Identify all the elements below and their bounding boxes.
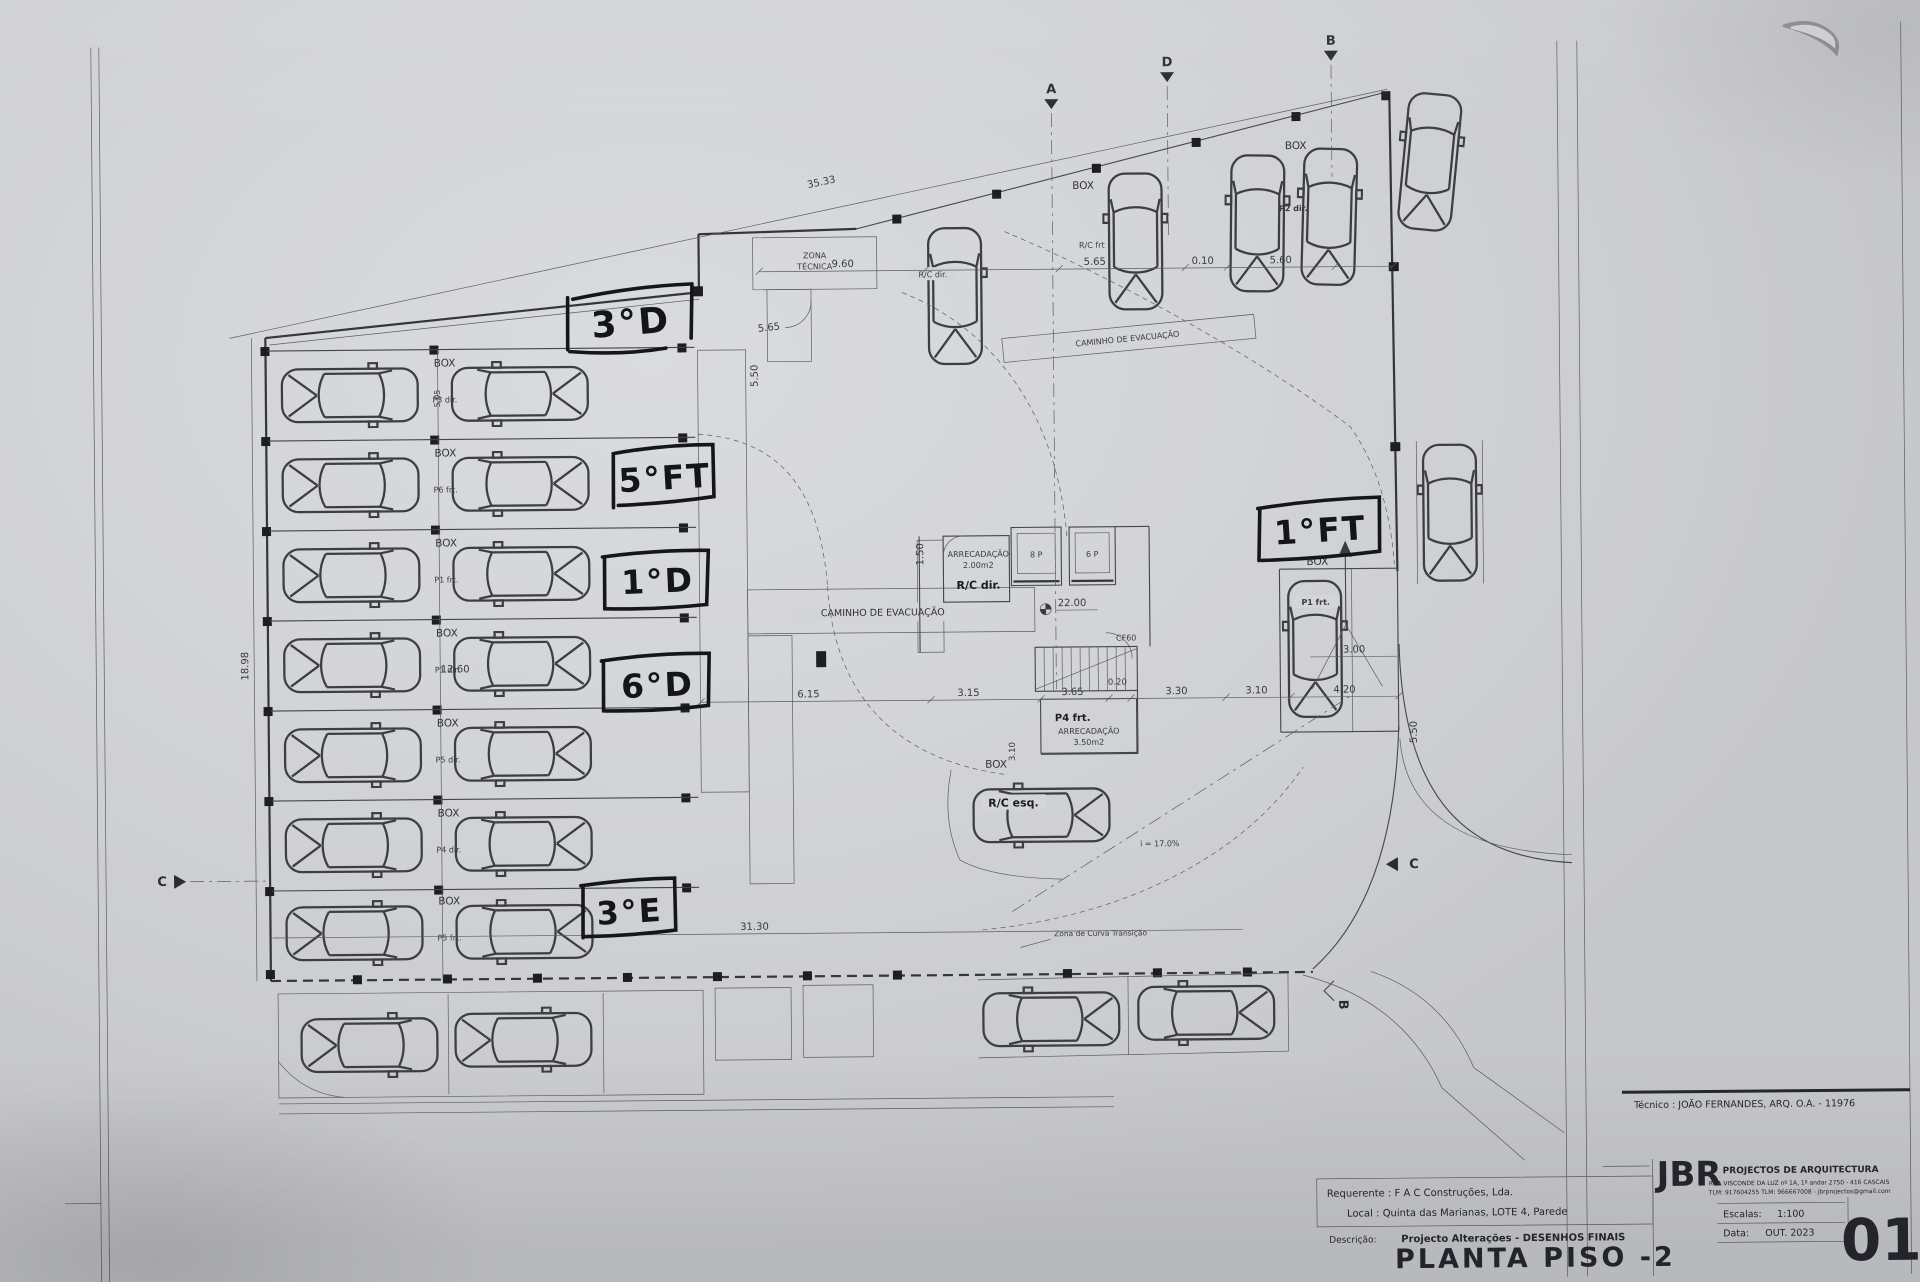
p1-frt-label: P1 frt.: [1301, 598, 1330, 607]
box-label: BOX: [985, 759, 1007, 771]
dim: 0.20: [1108, 678, 1127, 688]
car: [1391, 91, 1468, 232]
car: [1138, 980, 1274, 1045]
car: [456, 811, 592, 876]
escalas-label: Escalas:: [1723, 1209, 1762, 1220]
zona-tecnica-label: TÉCNICA: [796, 260, 833, 271]
garage-boundary: [227, 89, 1401, 981]
dim: 3.10: [1245, 685, 1267, 696]
stall-label: P1 frt.: [434, 575, 458, 584]
stall-label: P5 dir.: [436, 755, 461, 764]
local-line: Local : Quinta das Marianas, LOTE 4, Par…: [1347, 1207, 1568, 1220]
dim: 4.20: [1333, 685, 1355, 696]
handwritten-3e: 3°E: [595, 891, 663, 933]
dim: 5.65: [1084, 257, 1106, 268]
box-label: BOX: [435, 537, 457, 549]
box-label: BOX: [434, 447, 456, 459]
car: [452, 451, 588, 516]
box-label: BOX: [434, 357, 456, 369]
bottom-parking: [278, 970, 1565, 1171]
rc-frt-label: R/C frt: [1079, 241, 1105, 250]
escalas-value: 1:100: [1777, 1209, 1804, 1220]
car: [456, 899, 592, 964]
tecnico-line: Técnico : JOÃO FERNANDES, ARQ. O.A. - 11…: [1633, 1098, 1855, 1111]
storage-area: 3.50m2: [1074, 738, 1105, 747]
core: ARRECADAÇÃO 2.00m2 R/C dir. 8 P 6 P 22.0…: [919, 526, 1151, 755]
car: [983, 987, 1119, 1052]
handwritten-1d: 1°D: [620, 560, 694, 602]
car: [1225, 155, 1290, 291]
dim: 5.65: [757, 321, 780, 334]
zona-tecnica-label: ZONA: [803, 251, 827, 260]
car: [285, 723, 421, 788]
car: [452, 361, 588, 426]
evacuation-path-label: CAMINHO DE EVACUAÇÃO: [821, 607, 945, 619]
sheet-number: 01: [1841, 1206, 1920, 1275]
box-label: BOX: [1072, 180, 1094, 192]
dim: 31.30: [740, 922, 769, 933]
car: [1103, 173, 1168, 309]
unit-label-rc-dir: R/C dir.: [956, 579, 1000, 592]
slope-label: i = 17.0%: [1140, 839, 1180, 848]
rc-dir-small-label: R/C dir.: [918, 270, 947, 279]
photo-of-floor-plan: BOX P3 dir. BOX P6 frt. BOX P1 frt. BOX …: [0, 0, 1920, 1282]
box-label: BOX: [438, 807, 460, 819]
section-marker-b-bottom: B: [1335, 1000, 1350, 1010]
box-label: BOX: [436, 627, 458, 639]
under-stair-storage: P4 frt. ARRECADAÇÃO 3.50m2: [1041, 698, 1137, 753]
requerente-line: Requerente : F A C Construções, Lda.: [1327, 1187, 1513, 1200]
car: [301, 1013, 437, 1078]
dim: 5.05: [433, 390, 442, 408]
section-marker-b-top: B: [1326, 34, 1336, 49]
car: [1295, 148, 1363, 285]
lift-8p-label: 8 P: [1030, 550, 1043, 559]
right-curved-road: [1399, 643, 1572, 864]
car: [455, 721, 591, 786]
dim: 5.60: [1270, 255, 1292, 266]
stall-label: P5 frt.: [437, 933, 461, 942]
handwritten-5ft: 5°FT: [617, 456, 712, 501]
dim: 35.33: [806, 174, 836, 191]
handwritten-1ft: 1°FT: [1273, 508, 1368, 553]
level-marker: 22.00: [1040, 598, 1098, 615]
car: [283, 543, 419, 608]
car: [973, 783, 1109, 848]
dim: 18.98: [240, 652, 251, 681]
p2-dir-label: P2 dir.: [1279, 204, 1308, 213]
storage-area: 2.00m2: [963, 561, 994, 570]
left-parking-block: BOX P3 dir. BOX P6 frt. BOX P1 frt. BOX …: [267, 347, 699, 981]
dim: 5.50: [1409, 721, 1420, 743]
car: [453, 541, 589, 606]
dim: 9.60: [832, 259, 854, 270]
car: [282, 363, 418, 428]
door-cf60-label: CF60: [1116, 633, 1136, 642]
car: [282, 453, 418, 518]
title-block: Técnico : JOÃO FERNANDES, ARQ. O.A. - 11…: [1316, 1090, 1920, 1279]
box-label: BOX: [1285, 140, 1307, 152]
dim: 6.15: [797, 689, 819, 700]
car: [284, 633, 420, 698]
dim: 3.30: [1165, 686, 1187, 697]
car: [922, 228, 987, 364]
data-value: OUT. 2023: [1765, 1228, 1814, 1239]
data-label: Data:: [1723, 1228, 1749, 1239]
stall-label: P6 frt.: [434, 485, 458, 494]
firm-contacts: TLM: 917604255 TLM: 966667008 - jbrproje…: [1708, 1188, 1891, 1197]
dim: 0.10: [1192, 256, 1214, 267]
stall-label: P4 dir.: [436, 845, 461, 854]
box-label: BOX: [437, 717, 459, 729]
level-value: 22.00: [1058, 598, 1087, 609]
box-label: BOX: [438, 895, 460, 907]
car: [454, 631, 590, 696]
storage-label: ARRECADAÇÃO: [1058, 726, 1119, 737]
storage-label: ARRECADAÇÃO: [948, 549, 1009, 560]
section-marker-c-left: C: [157, 875, 167, 890]
firm-name: PROJECTOS DE ARQUITECTURA: [1723, 1165, 1879, 1176]
car: [455, 1007, 591, 1072]
handwritten-6d: 6°D: [620, 664, 694, 706]
dim: 1.50: [915, 543, 926, 565]
dim: 3.00: [1343, 644, 1365, 655]
descricao-label: Descrição:: [1329, 1235, 1376, 1245]
dim: 3.10: [1008, 742, 1018, 761]
car: [286, 901, 422, 966]
car: [286, 813, 422, 878]
lift-6p-label: 6 P: [1086, 550, 1099, 559]
rc-esq-label: R/C esq.: [988, 796, 1039, 809]
center-box-stall: BOX R/C esq.: [947, 758, 1110, 880]
curve-transition-label: Zona de Curva Transição: [1054, 928, 1147, 938]
firm-address: RUA VISCONDE DA LUZ nº 1A, 1º andar 2750…: [1709, 1179, 1890, 1188]
car: [1417, 445, 1482, 581]
section-marker-d: D: [1162, 55, 1173, 70]
drawing-title: PLANTA PISO -2: [1395, 1242, 1676, 1275]
dim: 3.15: [957, 688, 979, 699]
section-marker-c-right: C: [1409, 857, 1419, 872]
section-marker-a: A: [1046, 82, 1056, 97]
zona-tecnica: ZONA TÉCNICA: [752, 237, 876, 290]
dim: 5.50: [750, 365, 761, 387]
p4-frt-label: P4 frt.: [1055, 713, 1091, 724]
handwritten-3d: 3°D: [590, 300, 672, 347]
columns: [258, 91, 1405, 985]
floor-plan-drawing: BOX P3 dir. BOX P6 frt. BOX P1 frt. BOX …: [0, 0, 1920, 1282]
dim: 12.60: [441, 664, 470, 675]
dim: 3.65: [1061, 687, 1083, 698]
